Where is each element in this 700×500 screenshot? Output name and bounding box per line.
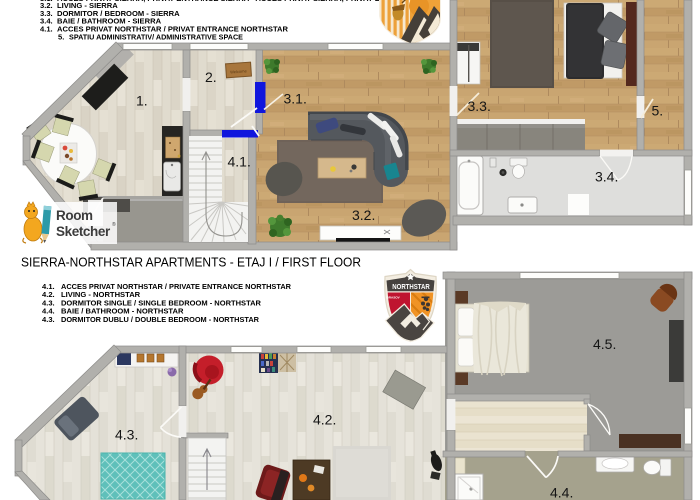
svg-text:SPATIU ADMINISTRATIV/ ADMINIST: SPATIU ADMINISTRATIV/ ADMINISTRATIVE SPA… — [69, 32, 243, 41]
svg-text:5.: 5. — [652, 103, 664, 119]
svg-text:5.: 5. — [58, 32, 64, 41]
svg-text:4.1.: 4.1. — [228, 154, 251, 170]
svg-text:3.1.: 3.1. — [284, 91, 307, 107]
svg-text:4.3.: 4.3. — [115, 427, 138, 443]
svg-text:2.: 2. — [205, 69, 217, 85]
svg-text:BRASOV: BRASOV — [387, 296, 401, 300]
svg-text:®: ® — [112, 221, 116, 228]
svg-text:SIERRA-NORTHSTAR APARTMENTS -: SIERRA-NORTHSTAR APARTMENTS - ETAJ I / F… — [21, 255, 361, 270]
svg-text:4.5.: 4.5. — [593, 336, 616, 352]
svg-text:3.2.: 3.2. — [352, 207, 375, 223]
svg-text:DORMITOR DUBLU / DOUBLE BEDROO: DORMITOR DUBLU / DOUBLE BEDROOM - NORTHS… — [61, 315, 259, 324]
svg-text:NORTHSTAR: NORTHSTAR — [392, 284, 430, 291]
svg-text:4.3.: 4.3. — [42, 315, 55, 324]
svg-text:4.4.: 4.4. — [550, 485, 573, 500]
svg-text:1.: 1. — [136, 93, 148, 109]
svg-text:3.3.: 3.3. — [468, 98, 491, 114]
svg-text:Room: Room — [56, 208, 93, 223]
svg-text:3.4.: 3.4. — [595, 169, 618, 185]
svg-text:4.1.: 4.1. — [40, 25, 53, 34]
svg-text:Sketcher: Sketcher — [56, 224, 111, 239]
svg-text:4.2.: 4.2. — [313, 412, 336, 428]
